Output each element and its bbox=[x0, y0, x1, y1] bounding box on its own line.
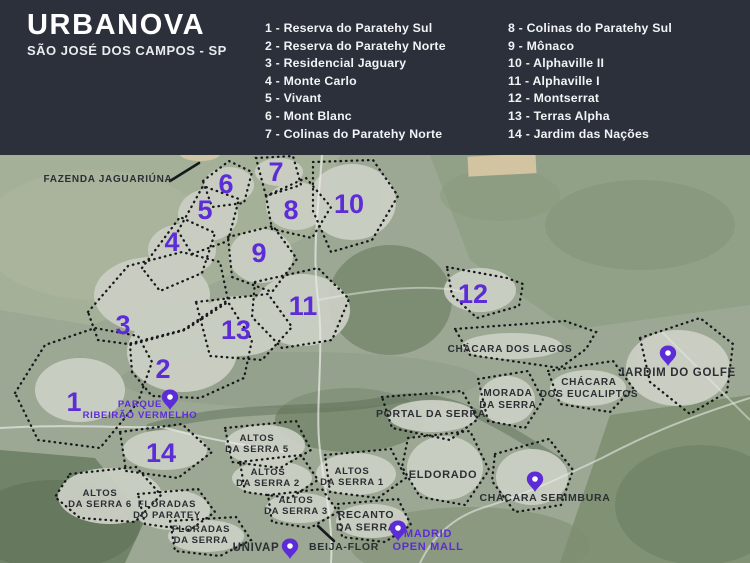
legend-column-1: 1 - Reserva do Paratehy Sul2 - Reserva d… bbox=[265, 20, 446, 143]
legend-item: 8 - Colinas do Paratehy Sul bbox=[508, 20, 672, 38]
legend-item: 4 - Monte Carlo bbox=[265, 73, 446, 91]
legend-column-2: 8 - Colinas do Paratehy Sul9 - Mônaco10 … bbox=[508, 20, 672, 143]
legend-item: 1 - Reserva do Paratehy Sul bbox=[265, 20, 446, 38]
header: URBANOVA SÃO JOSÉ DOS CAMPOS - SP 1 - Re… bbox=[0, 0, 750, 155]
label-eldorado: ELDORADO bbox=[409, 469, 478, 481]
label-floradas-do-paratey: FLORADASDO PARATEY bbox=[133, 499, 201, 521]
legend-item: 2 - Reserva do Paratehy Norte bbox=[265, 38, 446, 56]
legend-item: 13 - Terras Alpha bbox=[508, 108, 672, 126]
region-number-2: 2 bbox=[155, 354, 170, 384]
label-fazenda-jaguariuna: FAZENDA JAGUARIÚNA bbox=[44, 172, 173, 185]
label-univap: UNIVAP bbox=[233, 542, 280, 554]
region-number-7: 7 bbox=[268, 157, 283, 187]
label-recanto-da-serra: RECANTODA SERRA bbox=[336, 509, 396, 533]
label-jardim-do-golfe: JARDIM DO GOLFE bbox=[618, 367, 736, 379]
region-number-12: 12 bbox=[458, 279, 488, 309]
region-number-3: 3 bbox=[115, 310, 130, 340]
legend-item: 6 - Mont Blanc bbox=[265, 108, 446, 126]
region-number-1: 1 bbox=[66, 387, 81, 417]
legend-item: 9 - Mônaco bbox=[508, 38, 672, 56]
page-title: URBANOVA bbox=[27, 10, 227, 40]
urbanova-map-infographic: URBANOVA SÃO JOSÉ DOS CAMPOS - SP 1 - Re… bbox=[0, 0, 750, 563]
region-number-4: 4 bbox=[164, 227, 179, 257]
label-portal-da-serra: PORTAL DA SERRA bbox=[376, 408, 486, 420]
legend-item: 11 - Alphaville I bbox=[508, 73, 672, 91]
region-number-8: 8 bbox=[283, 195, 298, 225]
region-number-6: 6 bbox=[218, 169, 233, 199]
region-number-13: 13 bbox=[221, 315, 251, 345]
legend-item: 10 - Alphaville II bbox=[508, 55, 672, 73]
region-number-14: 14 bbox=[146, 438, 176, 468]
label-floradas-da-serra: FLORADASDA SERRA bbox=[172, 524, 230, 546]
label-beija-flor: BEIJA-FLOR bbox=[309, 541, 379, 553]
region-number-11: 11 bbox=[289, 291, 318, 321]
legend-item: 12 - Montserrat bbox=[508, 90, 672, 108]
region-number-5: 5 bbox=[197, 195, 212, 225]
legend-item: 5 - Vivant bbox=[265, 90, 446, 108]
legend-item: 7 - Colinas do Paratehy Norte bbox=[265, 126, 446, 144]
satellite-map: FAZENDA JAGUARIÚNACHÁCARA DOS LAGOSJARDI… bbox=[0, 155, 750, 563]
title-block: URBANOVA SÃO JOSÉ DOS CAMPOS - SP bbox=[27, 10, 227, 58]
label-morada-da-serra: MORADADA SERRA bbox=[479, 388, 536, 411]
region-number-10: 10 bbox=[334, 189, 364, 219]
map: FAZENDA JAGUARIÚNACHÁCARA DOS LAGOSJARDI… bbox=[0, 155, 750, 563]
legend-item: 3 - Residencial Jaguary bbox=[265, 55, 446, 73]
page-subtitle: SÃO JOSÉ DOS CAMPOS - SP bbox=[27, 43, 227, 58]
label-chacara-dos-lagos: CHÁCARA DOS LAGOS bbox=[448, 342, 573, 355]
legend-item: 14 - Jardim das Nações bbox=[508, 126, 672, 144]
label-chacara-serimbura: CHÁCARA SERIMBURA bbox=[479, 491, 610, 504]
region-number-9: 9 bbox=[251, 238, 266, 268]
